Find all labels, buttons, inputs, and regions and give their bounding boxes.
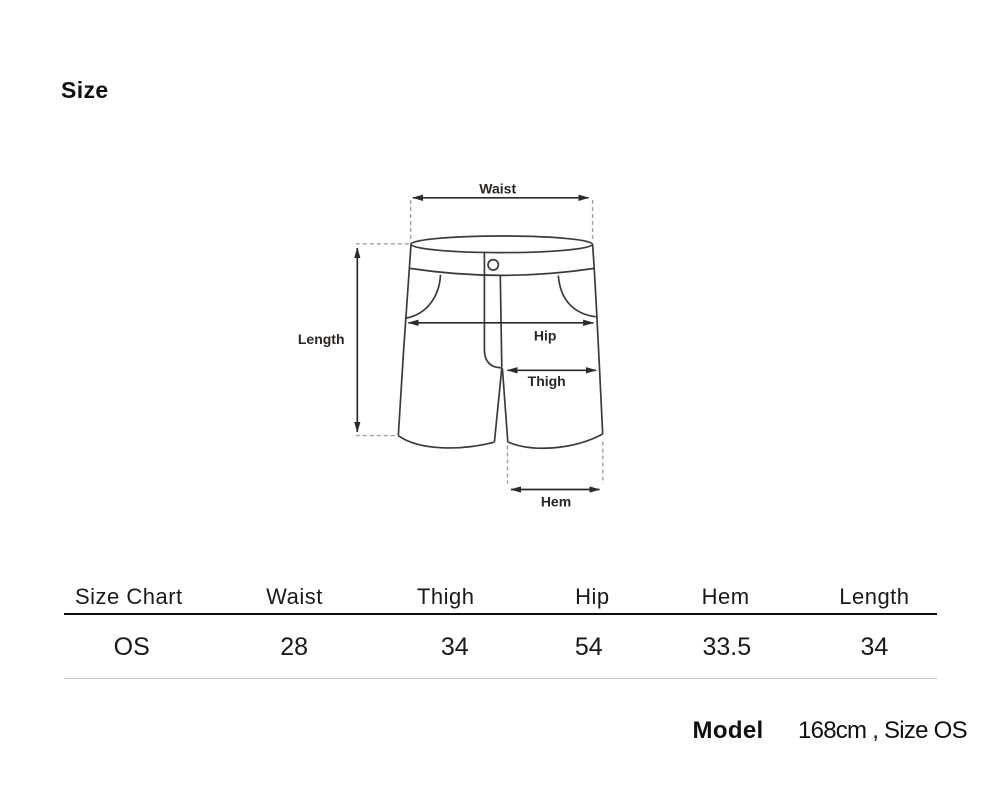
svg-text:Hem: Hem [541, 493, 571, 509]
svg-text:Waist: Waist [479, 181, 516, 197]
svg-text:Length: Length [298, 331, 345, 347]
svg-text:Hip: Hip [534, 328, 557, 344]
svg-text:Thigh: Thigh [528, 373, 566, 389]
